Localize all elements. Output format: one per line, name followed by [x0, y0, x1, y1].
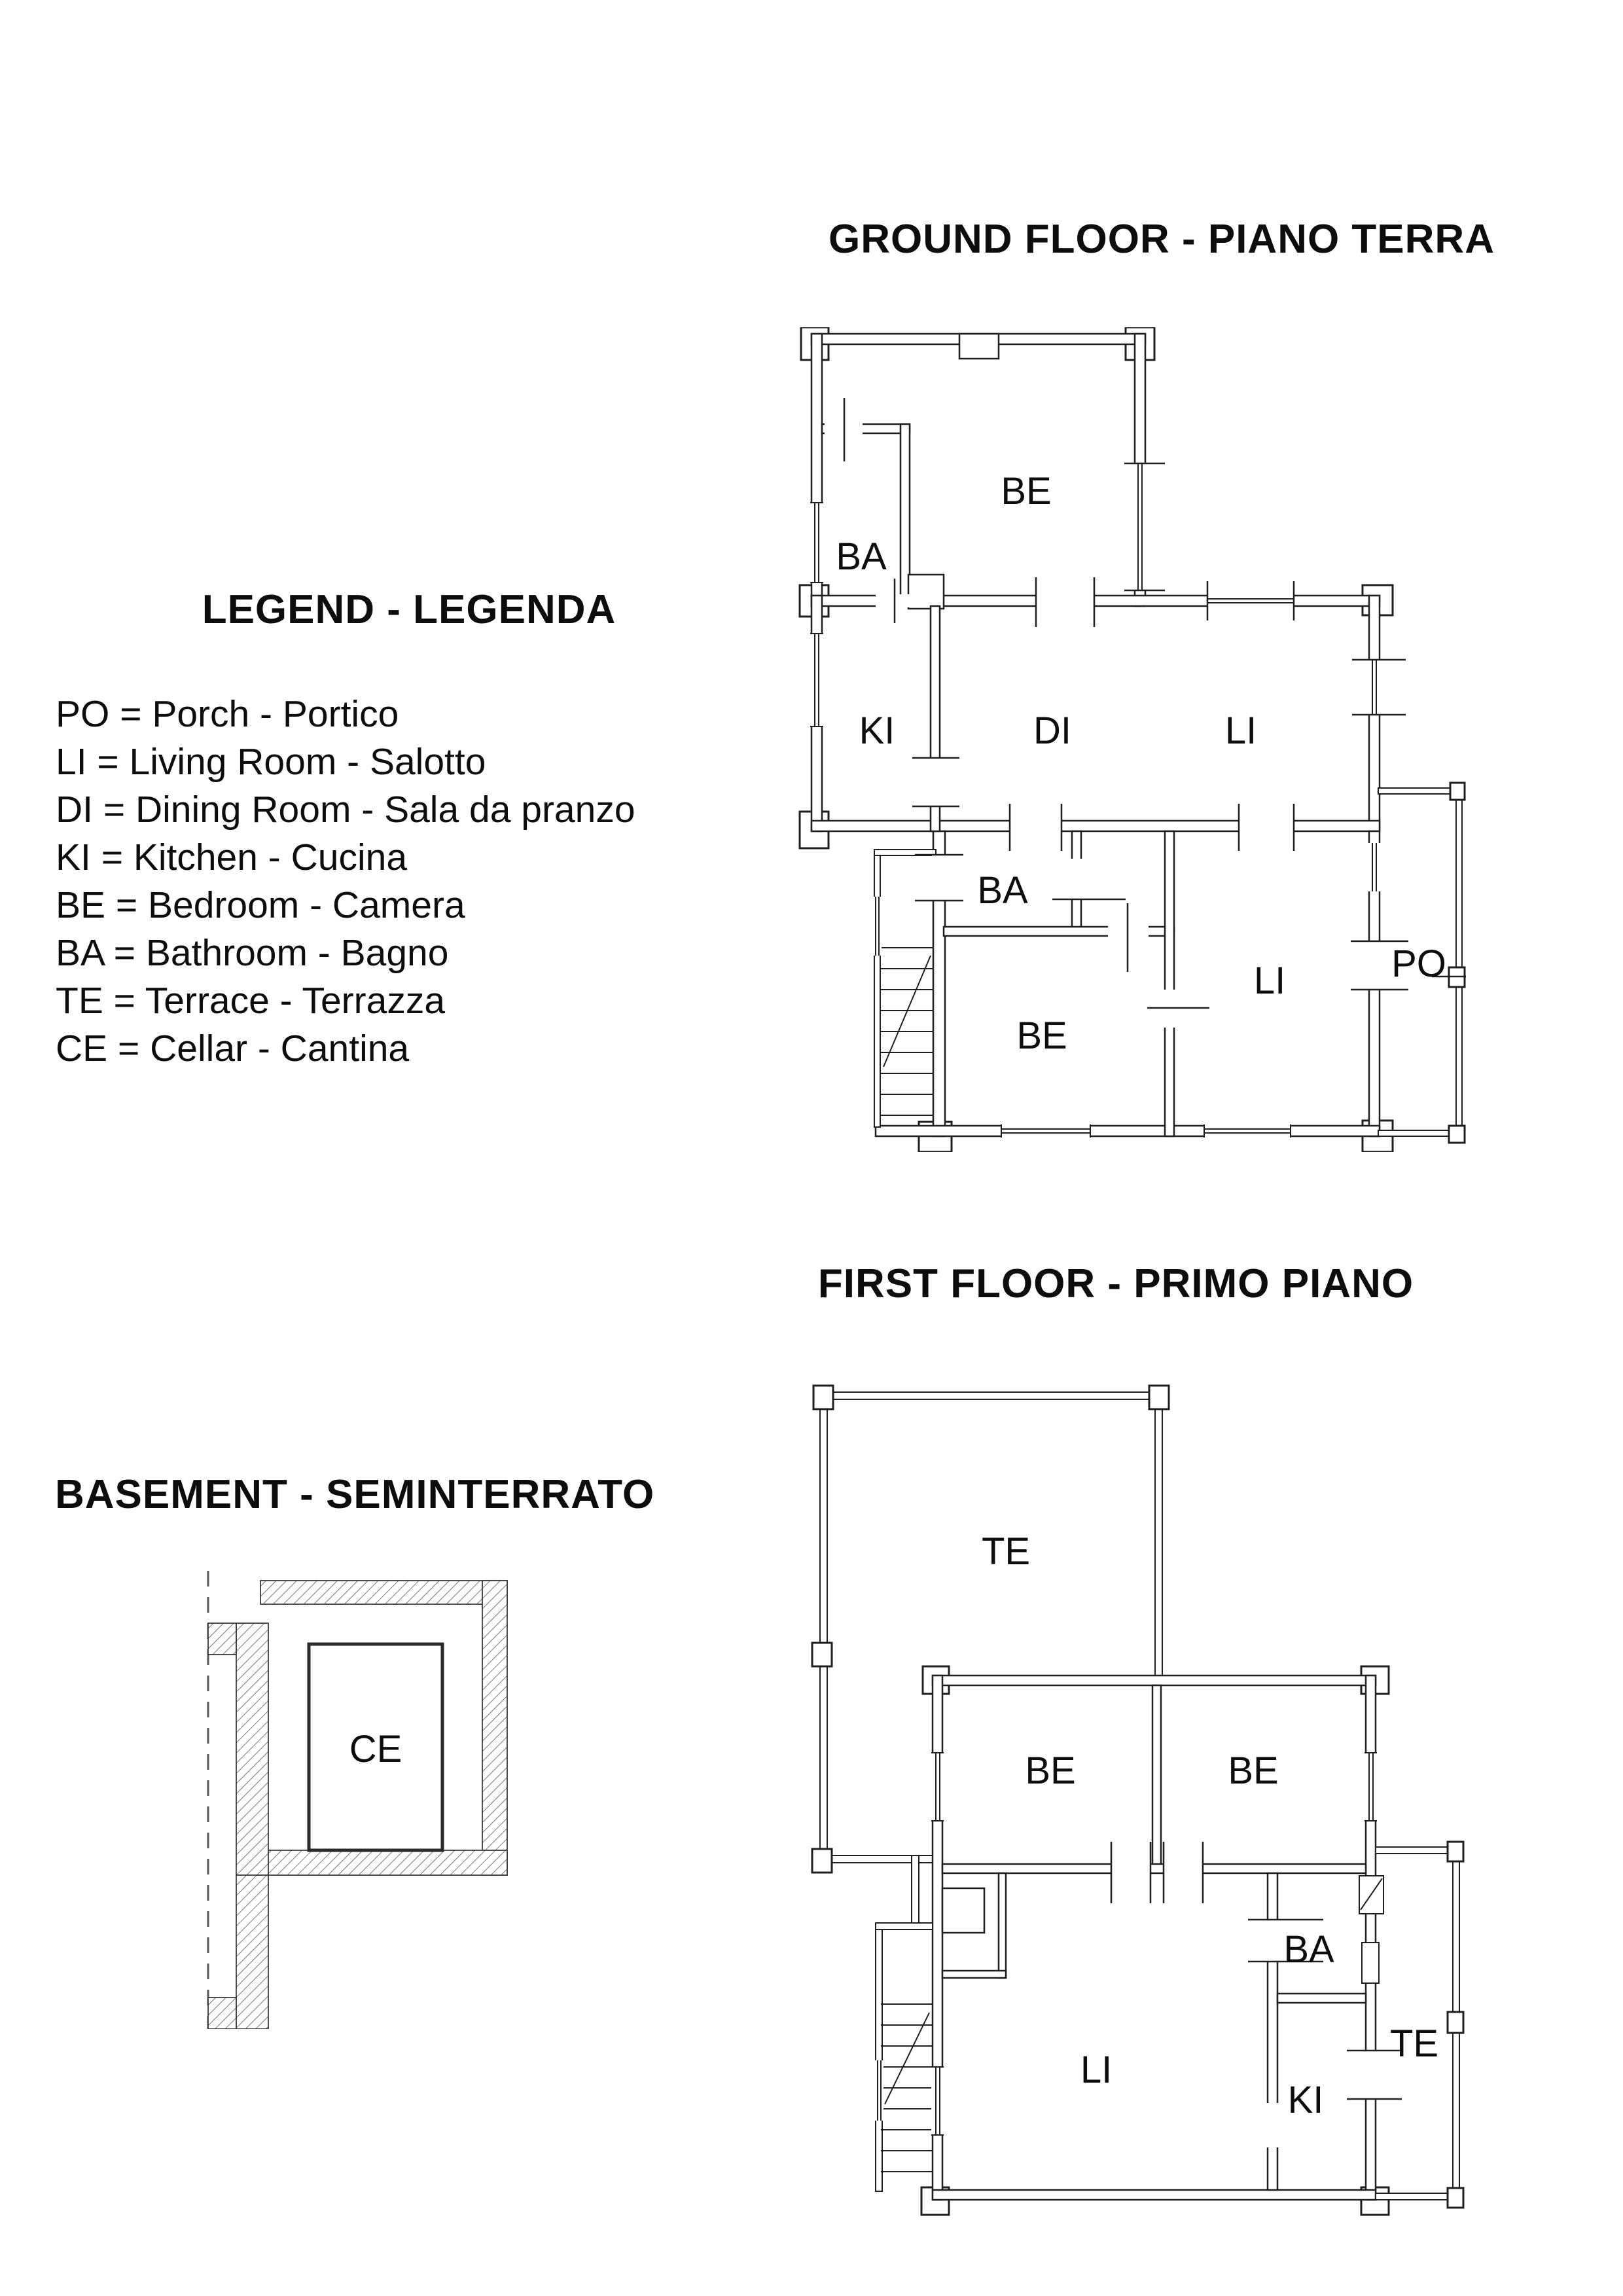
legend-item-bath: BA = Bathroom - Bagno [56, 929, 749, 977]
legend-item-living: LI = Living Room - Salotto [56, 738, 749, 786]
first-floor-title: FIRST FLOOR - PRIMO PIANO [789, 1261, 1443, 1307]
room-label-porch-ground: PO [1391, 942, 1446, 985]
legend: LEGEND - LEGENDA PO = Porch - Portico LI… [56, 586, 749, 1073]
legend-items: PO = Porch - Portico LI = Living Room - … [56, 691, 749, 1073]
ground-floor-doors [825, 398, 1408, 1028]
room-label-bathroom-top-ground: BA [836, 535, 887, 578]
room-label-terrace-right-first: TE [1390, 2022, 1438, 2065]
first-floor-stairs [874, 1923, 933, 2191]
room-label-kitchen-first: KI [1288, 2079, 1324, 2121]
legend-item-porch: PO = Porch - Portico [56, 691, 749, 738]
legend-item-bedroom: BE = Bedroom - Camera [56, 882, 749, 929]
legend-item-cellar: CE = Cellar - Cantina [56, 1025, 749, 1073]
legend-item-dining: DI = Dining Room - Sala da pranzo [56, 786, 749, 834]
room-label-bedroom-left-first: BE [1025, 1749, 1075, 1792]
room-label-cellar-basement: CE [349, 1728, 402, 1770]
basement-title: BASEMENT - SEMINTERRATO [55, 1471, 654, 1518]
room-label-bedroom-bottom-ground: BE [1016, 1014, 1067, 1057]
ground-floor-windows [810, 463, 1406, 1138]
room-label-dining-ground: DI [1033, 709, 1071, 752]
legend-item-kitchen: KI = Kitchen - Cucina [56, 834, 749, 882]
room-label-bedroom-right-first: BE [1228, 1749, 1278, 1792]
room-label-living-first: LI [1080, 2049, 1112, 2091]
room-label-terrace-large-first: TE [982, 1530, 1030, 1573]
ground-floor-title: GROUND FLOOR - PIANO TERRA [789, 216, 1535, 262]
legend-title: LEGEND - LEGENDA [95, 586, 723, 633]
legend-item-terrace: TE = Terrace - Terrazza [56, 977, 749, 1025]
room-label-bathroom-small-ground: BA [977, 869, 1028, 912]
room-label-kitchen-ground: KI [859, 709, 895, 752]
first-floor-terrace-large [812, 1386, 1169, 1929]
room-label-living-bottom-ground: LI [1254, 960, 1285, 1002]
ground-floor-plan: BA BE KI DI LI BA BE LI PO [785, 327, 1466, 1152]
first-floor-plan: TE BE BE LI BA KI TE [772, 1368, 1492, 2258]
room-label-living-mid-ground: LI [1225, 709, 1257, 752]
ground-floor-stairs [873, 850, 936, 1127]
basement-plan: CE [164, 1571, 772, 2029]
room-label-bathroom-first: BA [1283, 1928, 1334, 1971]
basement-cellar-room: CE [309, 1644, 442, 1850]
floorplan-sheet: GROUND FLOOR - PIANO TERRA FIRST FLOOR -… [0, 0, 1623, 2296]
room-label-bedroom-top-ground: BE [1001, 470, 1051, 512]
